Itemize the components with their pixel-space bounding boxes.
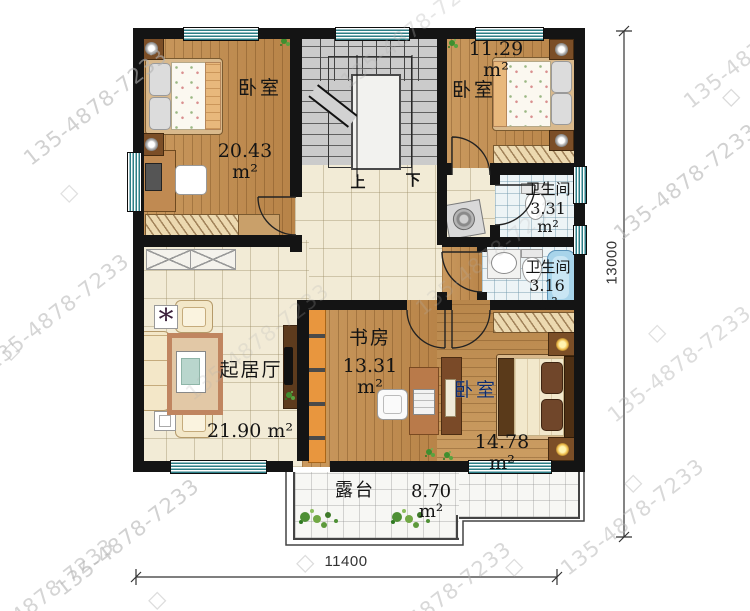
computer-monitor-icon (413, 389, 435, 415)
watermark-diamond-icon: ◇ (148, 585, 166, 611)
room-label-study: 书房 (340, 328, 400, 349)
room-label-bath2: 卫生间 (518, 259, 578, 276)
watermark-text: 135-4878-7233 (603, 301, 750, 428)
flower-stand-icon: * (154, 305, 178, 329)
pillow-icon (149, 63, 171, 96)
watermark-text: 135-4878-7233 (363, 537, 516, 611)
watermark-text: 135-4878-7233 (609, 119, 750, 246)
room-area-bedroom2: 11.29 m² (456, 39, 536, 81)
blanket-icon (205, 62, 221, 130)
room-area-bath1: 3.31 m² (520, 200, 576, 235)
wall-bath-divider (442, 237, 585, 247)
storage-cabinet-icon (146, 249, 192, 270)
wall-bedroom2-bottom-a (437, 163, 452, 175)
room-area-terrace: 8.70 m² (396, 482, 466, 522)
pillow-icon (551, 61, 572, 93)
room-area-bedroom3: 14.78 m² (460, 432, 544, 474)
armchair-icon (175, 300, 213, 333)
window-stairs-top (335, 27, 410, 41)
wall-bath2-left-b (477, 292, 487, 300)
watermark-diamond-icon: ◇ (2, 336, 20, 364)
pillow-icon (541, 399, 563, 431)
pillow-icon (541, 362, 563, 394)
room-label-bedroom1: 卧室 (232, 78, 288, 99)
plant-sprig-icon (426, 449, 432, 455)
wall-bath1-left-a (490, 175, 500, 185)
watermark-text: 135-4878-7233 (51, 474, 204, 601)
pillow-icon (149, 97, 171, 130)
window-living-bottom (170, 460, 267, 474)
window-bedroom1-left (127, 152, 142, 212)
bookshelf-icon (308, 309, 326, 463)
wall-bath1-left-b (490, 225, 500, 237)
wall-living-study-divider (297, 300, 309, 461)
wall-bedroom2-bottom-b (490, 163, 585, 175)
hallway-floor (295, 165, 447, 305)
stairs-down-label: 下 (403, 172, 423, 189)
room-area-living: 21.90 m² (206, 421, 294, 442)
window-bedroom1-top (183, 27, 259, 41)
wall-bedroom1-bottom (133, 235, 302, 247)
watermark-diamond-icon: ◇ (722, 82, 740, 110)
wall-bedroom1-right-upper (290, 28, 302, 197)
watermark-diamond-icon: ◇ (624, 468, 642, 496)
watermark-text: 135-4878-7233 (0, 249, 134, 376)
watermark-diamond-icon: ◇ (60, 178, 78, 206)
computer-icon (145, 163, 162, 191)
floor-plan: * 卧室 20.43 m² 11. (0, 0, 750, 611)
room-area-bedroom1: 20.43 m² (203, 141, 287, 183)
storage-cabinet-icon (190, 249, 236, 270)
room-label-bedroom2: 卧室 (446, 80, 502, 101)
wall-bedroom3-top-a (445, 300, 452, 310)
room-label-bath1: 卫生间 (518, 181, 578, 198)
wall-outer-left (133, 28, 144, 472)
room-area-bath2: 3.16 m² (518, 277, 576, 312)
watermark-text: 135-4878-7233 (679, 0, 750, 113)
plant-sprig-icon (286, 392, 292, 398)
plant-sprig-icon (444, 452, 450, 458)
dimension-width-label: 11400 (306, 553, 386, 570)
nightstand-lamp-icon (548, 437, 576, 461)
nightstand-lamp-icon (548, 332, 576, 356)
dimension-line-bottom (131, 569, 562, 585)
stairs-up-label: 上 (348, 174, 368, 191)
wardrobe-icon (493, 312, 578, 333)
plant-sprig-icon (449, 40, 455, 46)
stair-landing (351, 74, 401, 170)
pillow-icon (551, 93, 572, 125)
coffee-table-icon (176, 351, 206, 393)
watermark-diamond-icon: ◇ (505, 552, 523, 580)
nightstand-lamp-icon (549, 130, 574, 151)
room-label-terrace: 露台 (328, 481, 382, 501)
watermark-diamond-icon: ◇ (648, 318, 666, 346)
room-label-living: 起居厅 (210, 360, 292, 381)
wall-study-top (297, 300, 407, 310)
washing-machine-icon (443, 199, 486, 240)
wall-corridor-left-upper (437, 175, 447, 245)
room-label-bedroom3: 卧室 (448, 380, 504, 401)
terrace-plant-icon (300, 512, 310, 522)
sink-icon (491, 252, 517, 274)
nightstand-lamp-icon (549, 39, 574, 60)
watermark-text: 135-4878-7233 (0, 534, 119, 611)
room-area-study: 13.31 m² (328, 356, 412, 398)
dimension-height-label: 13000 (604, 239, 621, 287)
mattress-icon (171, 62, 209, 130)
wall-bath2-left-a (477, 247, 487, 252)
